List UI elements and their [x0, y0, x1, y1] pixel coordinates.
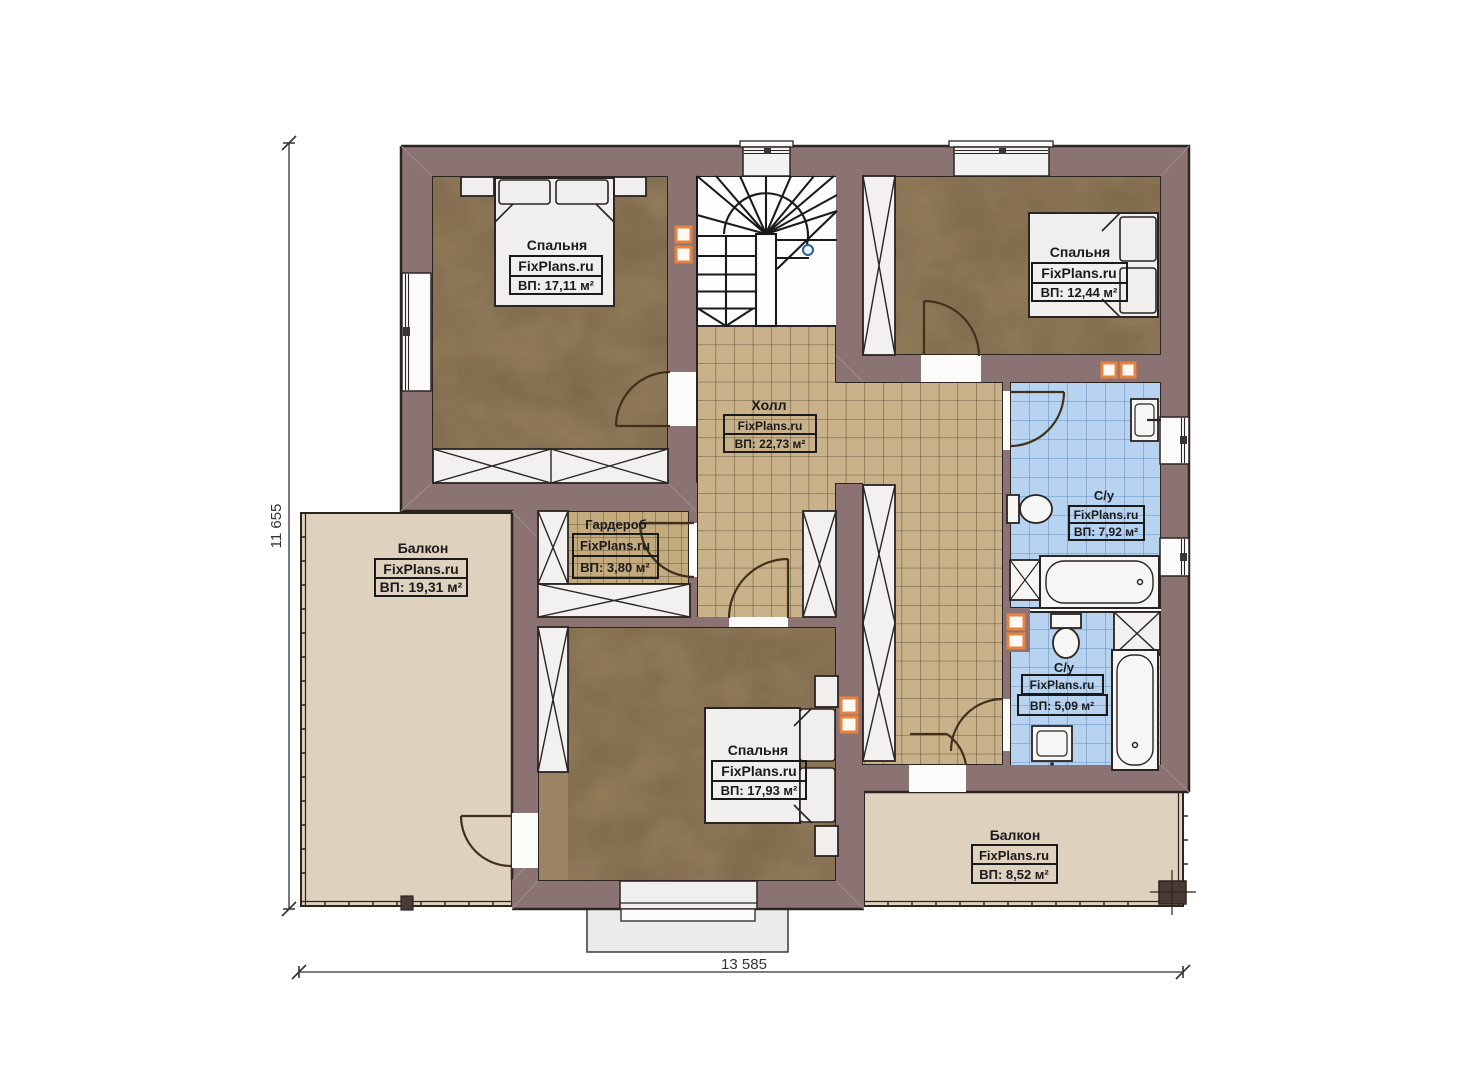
svg-text:FixPlans.ru: FixPlans.ru — [580, 538, 650, 553]
svg-text:Холл: Холл — [751, 397, 786, 413]
svg-text:Спальня: Спальня — [728, 742, 788, 758]
svg-text:FixPlans.ru: FixPlans.ru — [1074, 508, 1139, 522]
svg-text:FixPlans.ru: FixPlans.ru — [1041, 265, 1116, 281]
svg-text:13 585: 13 585 — [721, 956, 767, 973]
svg-text:ВП: 22,73 м²: ВП: 22,73 м² — [735, 437, 806, 451]
svg-text:FixPlans.ru: FixPlans.ru — [979, 848, 1049, 863]
svg-text:С/у: С/у — [1054, 660, 1075, 675]
svg-text:FixPlans.ru: FixPlans.ru — [518, 258, 593, 274]
svg-text:ВП: 17,11 м²: ВП: 17,11 м² — [518, 278, 595, 293]
svg-text:ВП: 3,80 м²: ВП: 3,80 м² — [580, 560, 650, 575]
svg-text:ВП: 12,44 м²: ВП: 12,44 м² — [1041, 285, 1118, 300]
svg-text:Гардероб: Гардероб — [585, 517, 646, 532]
svg-text:ВП: 5,09 м²: ВП: 5,09 м² — [1030, 699, 1094, 713]
svg-text:Балкон: Балкон — [990, 827, 1041, 843]
svg-text:ВП: 19,31 м²: ВП: 19,31 м² — [380, 579, 463, 595]
svg-text:FixPlans.ru: FixPlans.ru — [738, 419, 803, 433]
svg-text:ВП: 8,52 м²: ВП: 8,52 м² — [979, 867, 1049, 882]
svg-text:Балкон: Балкон — [398, 540, 449, 556]
svg-text:Спальня: Спальня — [1050, 244, 1110, 260]
svg-text:FixPlans.ru: FixPlans.ru — [383, 561, 458, 577]
svg-text:FixPlans.ru: FixPlans.ru — [721, 763, 796, 779]
svg-text:ВП: 7,92 м²: ВП: 7,92 м² — [1074, 525, 1138, 539]
svg-text:С/у: С/у — [1094, 488, 1115, 503]
svg-text:FixPlans.ru: FixPlans.ru — [1030, 678, 1095, 692]
svg-text:11 655: 11 655 — [268, 504, 285, 549]
svg-text:ВП: 17,93 м²: ВП: 17,93 м² — [721, 783, 798, 798]
svg-text:Спальня: Спальня — [527, 237, 587, 253]
